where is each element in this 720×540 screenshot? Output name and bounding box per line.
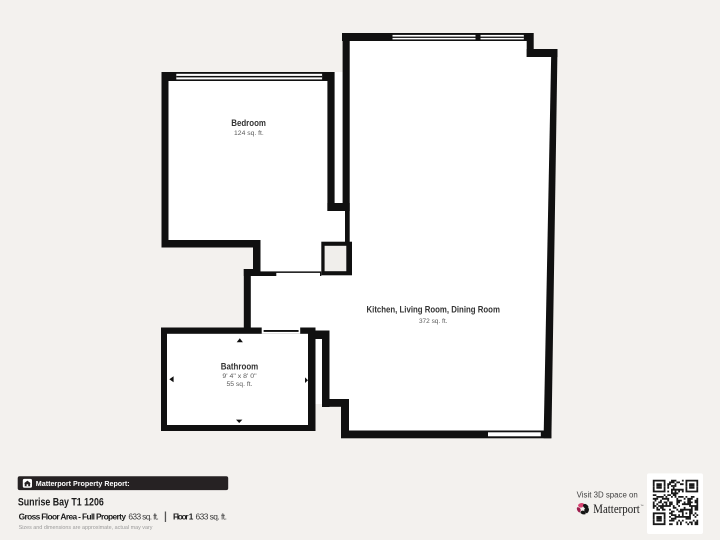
svg-text:55 sq. ft.: 55 sq. ft. [227, 381, 253, 388]
svg-text:9' 4" x 8' 0": 9' 4" x 8' 0" [222, 373, 257, 380]
svg-text:1: 1 [189, 512, 194, 521]
svg-text:124 sq. ft.: 124 sq. ft. [234, 130, 264, 137]
svg-text:Matterport Property Report:: Matterport Property Report: [36, 479, 130, 488]
svg-text:Floor: Floor [173, 511, 189, 521]
svg-text:Sizes and dimensions are appro: Sizes and dimensions are approximate, ac… [19, 525, 153, 531]
svg-text:Bathroom: Bathroom [221, 360, 259, 371]
svg-text:™: ™ [640, 504, 643, 508]
svg-text:Kitchen, Living Room, Dining R: Kitchen, Living Room, Dining Room [367, 303, 500, 314]
svg-text:372 sq. ft.: 372 sq. ft. [419, 318, 448, 325]
svg-text:633 sq. ft.: 633 sq. ft. [196, 511, 227, 521]
svg-text:Matterport: Matterport [593, 502, 640, 516]
svg-text:Sunrise Bay T1 1206: Sunrise Bay T1 1206 [18, 497, 104, 509]
svg-text:633 sq. ft.: 633 sq. ft. [128, 511, 158, 521]
svg-text:Bedroom: Bedroom [231, 117, 266, 128]
svg-text:Gross Floor Area - Full Proper: Gross Floor Area - Full Property [19, 511, 127, 521]
svg-text:Visit 3D space on: Visit 3D space on [577, 491, 638, 500]
